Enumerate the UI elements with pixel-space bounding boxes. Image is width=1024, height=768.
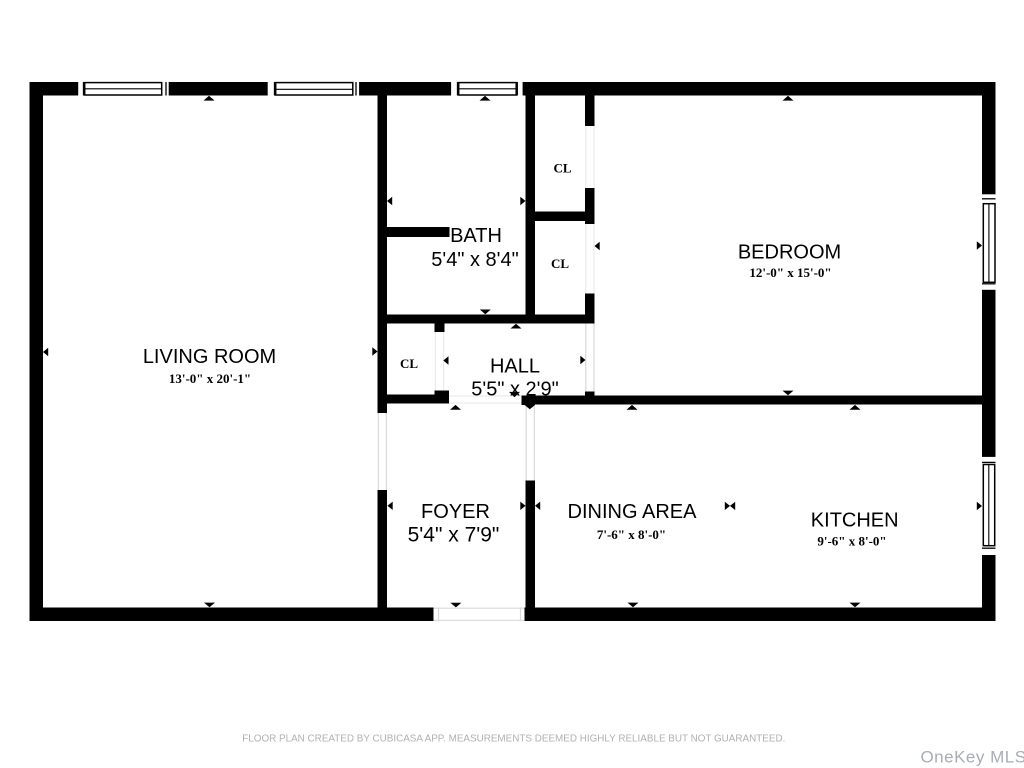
- svg-text:7'-6" x 8'-0": 7'-6" x 8'-0": [597, 527, 666, 542]
- svg-text:BEDROOM: BEDROOM: [738, 242, 841, 264]
- svg-text:5'5" x 2'9": 5'5" x 2'9": [471, 379, 558, 401]
- svg-text:HALL: HALL: [490, 356, 540, 378]
- svg-text:9'-6" x 8'-0": 9'-6" x 8'-0": [817, 534, 886, 549]
- svg-text:KITCHEN: KITCHEN: [811, 510, 899, 532]
- svg-text:DINING AREA: DINING AREA: [568, 501, 698, 523]
- svg-text:OneKey MLS: OneKey MLS: [920, 748, 1024, 767]
- svg-text:5'4" x 7'9": 5'4" x 7'9": [408, 524, 500, 547]
- svg-text:5'4" x 8'4": 5'4" x 8'4": [431, 249, 518, 271]
- svg-text:CL: CL: [551, 256, 569, 271]
- svg-text:BATH: BATH: [450, 225, 502, 247]
- svg-text:CL: CL: [553, 160, 571, 175]
- svg-text:13'-0" x 20'-1": 13'-0" x 20'-1": [169, 371, 251, 386]
- svg-text:12'-0" x 15'-0": 12'-0" x 15'-0": [749, 265, 831, 280]
- svg-text:LIVING ROOM: LIVING ROOM: [143, 346, 276, 368]
- svg-text:FLOOR PLAN CREATED BY CUBICASA: FLOOR PLAN CREATED BY CUBICASA APP. MEAS…: [242, 734, 785, 745]
- svg-text:CL: CL: [400, 356, 418, 371]
- svg-text:FOYER: FOYER: [421, 501, 490, 523]
